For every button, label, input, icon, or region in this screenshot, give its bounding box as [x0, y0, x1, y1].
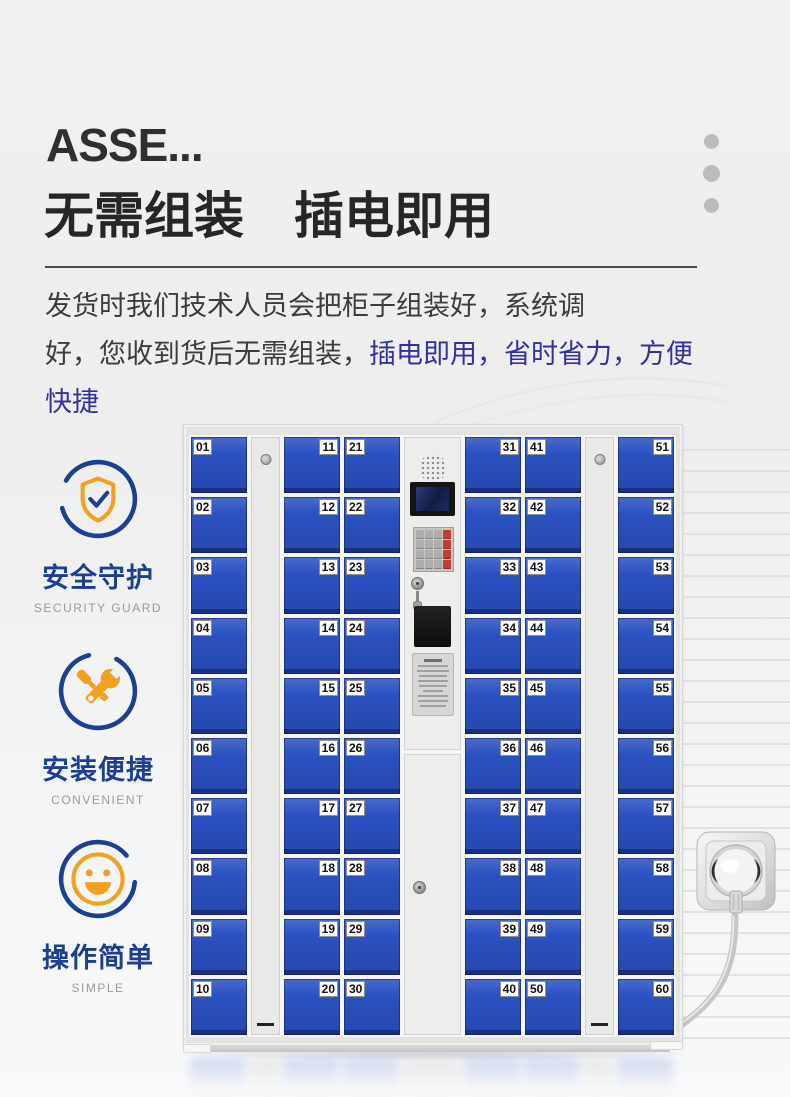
door-number-tag: 35: [500, 680, 519, 696]
door-number-tag: 56: [653, 740, 672, 756]
locker-door: 31: [465, 437, 521, 493]
locker-door: 21: [344, 437, 400, 493]
door-number-tag: 60: [653, 981, 672, 997]
locker-door: 05: [191, 678, 247, 734]
keypad-key: [434, 550, 442, 559]
keypad-key: [416, 530, 424, 539]
door-number-tag: 59: [653, 921, 672, 937]
locker-columns: 0102030405060708091011121314151617181920…: [191, 437, 675, 1035]
locker-door: 45: [525, 678, 581, 734]
label-text-line: [420, 705, 447, 707]
locker-door: 13: [284, 557, 340, 613]
label-text-line: [419, 675, 448, 677]
locker-door: 52: [618, 497, 674, 553]
door-number-tag: 14: [319, 620, 338, 636]
locker-door: 58: [618, 858, 674, 914]
locker-door: 44: [525, 618, 581, 674]
door-number-tag: 15: [319, 680, 338, 696]
door-number-tag: 17: [319, 800, 338, 816]
locker-door: 26: [344, 738, 400, 794]
feature-label: 安装便捷: [18, 748, 178, 787]
panel-slot: [591, 1023, 607, 1026]
locker-door: 37: [465, 798, 521, 854]
door-number-tag: 42: [527, 499, 546, 515]
locker-door: 49: [525, 919, 581, 975]
door-number-tag: 37: [500, 800, 519, 816]
reflection-block: [403, 1058, 460, 1090]
door-number-tag: 13: [319, 559, 338, 575]
door-number-tag: 58: [653, 860, 672, 876]
locker-door: 12: [284, 497, 340, 553]
locker-door: 15: [284, 678, 340, 734]
door-number-tag: 36: [500, 740, 519, 756]
label-text-line: [418, 700, 449, 702]
label-text-line: [418, 665, 448, 667]
reflection-block: [283, 1058, 339, 1090]
cabinet-foot-left: [183, 1044, 211, 1053]
door-number-tag: 51: [653, 439, 672, 455]
door-number-tag: 26: [346, 740, 365, 756]
locker-door: 27: [344, 798, 400, 854]
page-subtitle: 无需组装 插电即用: [44, 176, 494, 248]
door-number-tag: 20: [319, 981, 338, 997]
door-number-tag: 12: [319, 499, 338, 515]
locker-door: 50: [525, 979, 581, 1035]
locker-cabinet: 0102030405060708091011121314151617181920…: [183, 424, 683, 1046]
divider-line: [45, 266, 697, 268]
reflection-block: [343, 1058, 399, 1090]
door-number-tag: 11: [319, 439, 338, 455]
door-number-tag: 25: [346, 680, 365, 696]
locker-door: 02: [191, 497, 247, 553]
label-text-line: [418, 680, 449, 682]
display-screen: [410, 482, 455, 516]
label-text-line: [423, 690, 443, 692]
door-number-tag: 50: [527, 981, 546, 997]
label-text-line: [417, 670, 448, 672]
description: 发货时我们技术人员会把柜子组装好，系统调 好，您收到货后无需组装，插电即用，省时…: [45, 282, 705, 426]
door-number-tag: 08: [193, 860, 212, 876]
locker-door: 24: [344, 618, 400, 674]
door-number-tag: 07: [193, 800, 212, 816]
door-number-tag: 57: [653, 800, 672, 816]
dot-icon: [704, 198, 719, 213]
locker-door: 28: [344, 858, 400, 914]
door-number-tag: 53: [653, 559, 672, 575]
door-number-tag: 30: [346, 981, 365, 997]
keypad-key: [434, 530, 442, 539]
door-number-tag: 09: [193, 921, 212, 937]
door-number-tag: 18: [319, 860, 338, 876]
keypad-key: [416, 550, 424, 559]
reflection-block: [584, 1058, 613, 1090]
feature-label: 操作简单: [18, 936, 178, 975]
page-title: ASSE...: [46, 118, 203, 172]
locker-door: 01: [191, 437, 247, 493]
locker-door: 14: [284, 618, 340, 674]
feature-sublabel: SIMPLE: [18, 981, 178, 995]
locker-door: 42: [525, 497, 581, 553]
keypad: [413, 527, 454, 572]
side-panel: [251, 437, 280, 1035]
locker-door: 25: [344, 678, 400, 734]
reflection-block: [524, 1058, 580, 1090]
reflection-block: [464, 1058, 520, 1090]
locker-door: 55: [618, 678, 674, 734]
locker-door: 06: [191, 738, 247, 794]
panel-slot: [257, 1023, 273, 1026]
cabinet-foot-right: [650, 1041, 683, 1050]
door-number-tag: 55: [653, 680, 672, 696]
locker-door: 04: [191, 618, 247, 674]
locker-door: 54: [618, 618, 674, 674]
locker-door: 57: [618, 798, 674, 854]
locker-door: 36: [465, 738, 521, 794]
door-number-tag: 24: [346, 620, 365, 636]
locker-door: 30: [344, 979, 400, 1035]
feature-simple: 操作简单 SIMPLE: [18, 838, 178, 995]
display-screen-glass: [416, 487, 449, 511]
locker-door: 09: [191, 919, 247, 975]
locker-door: 35: [465, 678, 521, 734]
locker-door: 39: [465, 919, 521, 975]
description-line1: 发货时我们技术人员会把柜子组装好，系统调: [45, 282, 705, 330]
locker-door: 48: [525, 858, 581, 914]
locker-door: 20: [284, 979, 340, 1035]
locker-door: 08: [191, 858, 247, 914]
door-column: 31323334353637383940: [465, 437, 521, 1035]
door-number-tag: 43: [527, 559, 546, 575]
feature-security: 安全守护 SECURITY GUARD: [18, 458, 178, 615]
door-number-tag: 16: [319, 740, 338, 756]
label-text-line: [419, 685, 446, 687]
cabinet-base: [192, 1046, 670, 1052]
door-number-tag: 06: [193, 740, 212, 756]
reflection-block: [250, 1058, 279, 1090]
locker-door: 59: [618, 919, 674, 975]
door-number-tag: 38: [500, 860, 519, 876]
reflection-block: [617, 1058, 673, 1090]
door-number-tag: 22: [346, 499, 365, 515]
description-line2: 好，您收到货后无需组装，插电即用，省时省力，方便快捷: [45, 330, 705, 426]
shield-check-icon: [57, 458, 139, 540]
door-number-tag: 39: [500, 921, 519, 937]
keypad-key: [416, 540, 424, 549]
screw-icon: [594, 454, 605, 465]
power-cable: [674, 916, 735, 1030]
feature-label: 安全守护: [18, 556, 178, 595]
locker-door: 11: [284, 437, 340, 493]
locker-door: 23: [344, 557, 400, 613]
control-panel-upper: [404, 437, 461, 750]
side-panel: [585, 437, 614, 1035]
keypad-key: [425, 540, 433, 549]
keypad-key-red: [443, 540, 451, 549]
locker-door: 53: [618, 557, 674, 613]
locker-door: 41: [525, 437, 581, 493]
locker-door: 07: [191, 798, 247, 854]
tools-icon: [57, 650, 139, 732]
locker-door: 40: [465, 979, 521, 1035]
feature-sublabel: CONVENIENT: [18, 793, 178, 807]
door-number-tag: 40: [500, 981, 519, 997]
door-number-tag: 23: [346, 559, 365, 575]
dot-icon: [704, 134, 719, 149]
locker-door: 22: [344, 497, 400, 553]
door-number-tag: 02: [193, 499, 212, 515]
locker-door: 38: [465, 858, 521, 914]
scanner-window: [414, 606, 451, 647]
info-label: [412, 653, 454, 716]
locker-door: 18: [284, 858, 340, 914]
lock-icon: [413, 881, 426, 894]
locker-door: 10: [191, 979, 247, 1035]
door-number-tag: 10: [193, 981, 212, 997]
door-number-tag: 45: [527, 680, 546, 696]
door-column: 11121314151617181920: [284, 437, 340, 1035]
screw-icon: [260, 454, 271, 465]
locker-door: 19: [284, 919, 340, 975]
locker-door: 17: [284, 798, 340, 854]
door-number-tag: 34: [500, 620, 519, 636]
locker-door: 03: [191, 557, 247, 613]
cabinet-reflection: [183, 1058, 683, 1094]
smiley-icon: [57, 838, 139, 920]
keypad-key: [416, 560, 424, 569]
door-number-tag: 44: [527, 620, 546, 636]
keypad-key: [425, 560, 433, 569]
locker-door: 60: [618, 979, 674, 1035]
locker-door: 16: [284, 738, 340, 794]
locker-door: 43: [525, 557, 581, 613]
locker-door: 56: [618, 738, 674, 794]
door-number-tag: 32: [500, 499, 519, 515]
door-number-tag: 19: [319, 921, 338, 937]
keypad-key-red: [443, 550, 451, 559]
label-text-line: [418, 695, 447, 697]
door-number-tag: 04: [193, 620, 212, 636]
door-number-tag: 05: [193, 680, 212, 696]
door-number-tag: 48: [527, 860, 546, 876]
door-number-tag: 28: [346, 860, 365, 876]
door-number-tag: 46: [527, 740, 546, 756]
keypad-key: [434, 560, 442, 569]
door-number-tag: 21: [346, 439, 365, 455]
label-title-line: [424, 659, 443, 662]
door-column: 21222324252627282930: [344, 437, 400, 1035]
door-number-tag: 29: [346, 921, 365, 937]
door-number-tag: 27: [346, 800, 365, 816]
feature-convenient: 安装便捷 CONVENIENT: [18, 650, 178, 807]
door-number-tag: 54: [653, 620, 672, 636]
lock-icon: [411, 577, 424, 590]
keypad-key: [425, 550, 433, 559]
locker-door: 51: [618, 437, 674, 493]
door-number-tag: 01: [193, 439, 212, 455]
locker-door: 46: [525, 738, 581, 794]
door-number-tag: 41: [527, 439, 546, 455]
speaker-icon: [419, 454, 447, 482]
keypad-key-red: [443, 530, 451, 539]
locker-door: 34: [465, 618, 521, 674]
door-number-tag: 33: [500, 559, 519, 575]
keypad-key: [434, 540, 442, 549]
door-column: 01020304050607080910: [191, 437, 247, 1035]
control-panel-lower-door: [404, 754, 461, 1035]
reflection-block: [190, 1058, 246, 1090]
door-number-tag: 03: [193, 559, 212, 575]
dot-icon: [703, 165, 720, 182]
decorative-dots: [702, 134, 720, 229]
door-number-tag: 49: [527, 921, 546, 937]
door-number-tag: 52: [653, 499, 672, 515]
locker-door: 47: [525, 798, 581, 854]
door-column: 41424344454647484950: [525, 437, 581, 1035]
keypad-key-red: [443, 560, 451, 569]
locker-door: 32: [465, 497, 521, 553]
door-number-tag: 31: [500, 439, 519, 455]
locker-door: 29: [344, 919, 400, 975]
door-column: 51525354555657585960: [618, 437, 674, 1035]
keypad-key: [425, 530, 433, 539]
feature-sublabel: SECURITY GUARD: [18, 601, 178, 615]
control-panel: [404, 437, 461, 1035]
door-number-tag: 47: [527, 800, 546, 816]
locker-door: 33: [465, 557, 521, 613]
